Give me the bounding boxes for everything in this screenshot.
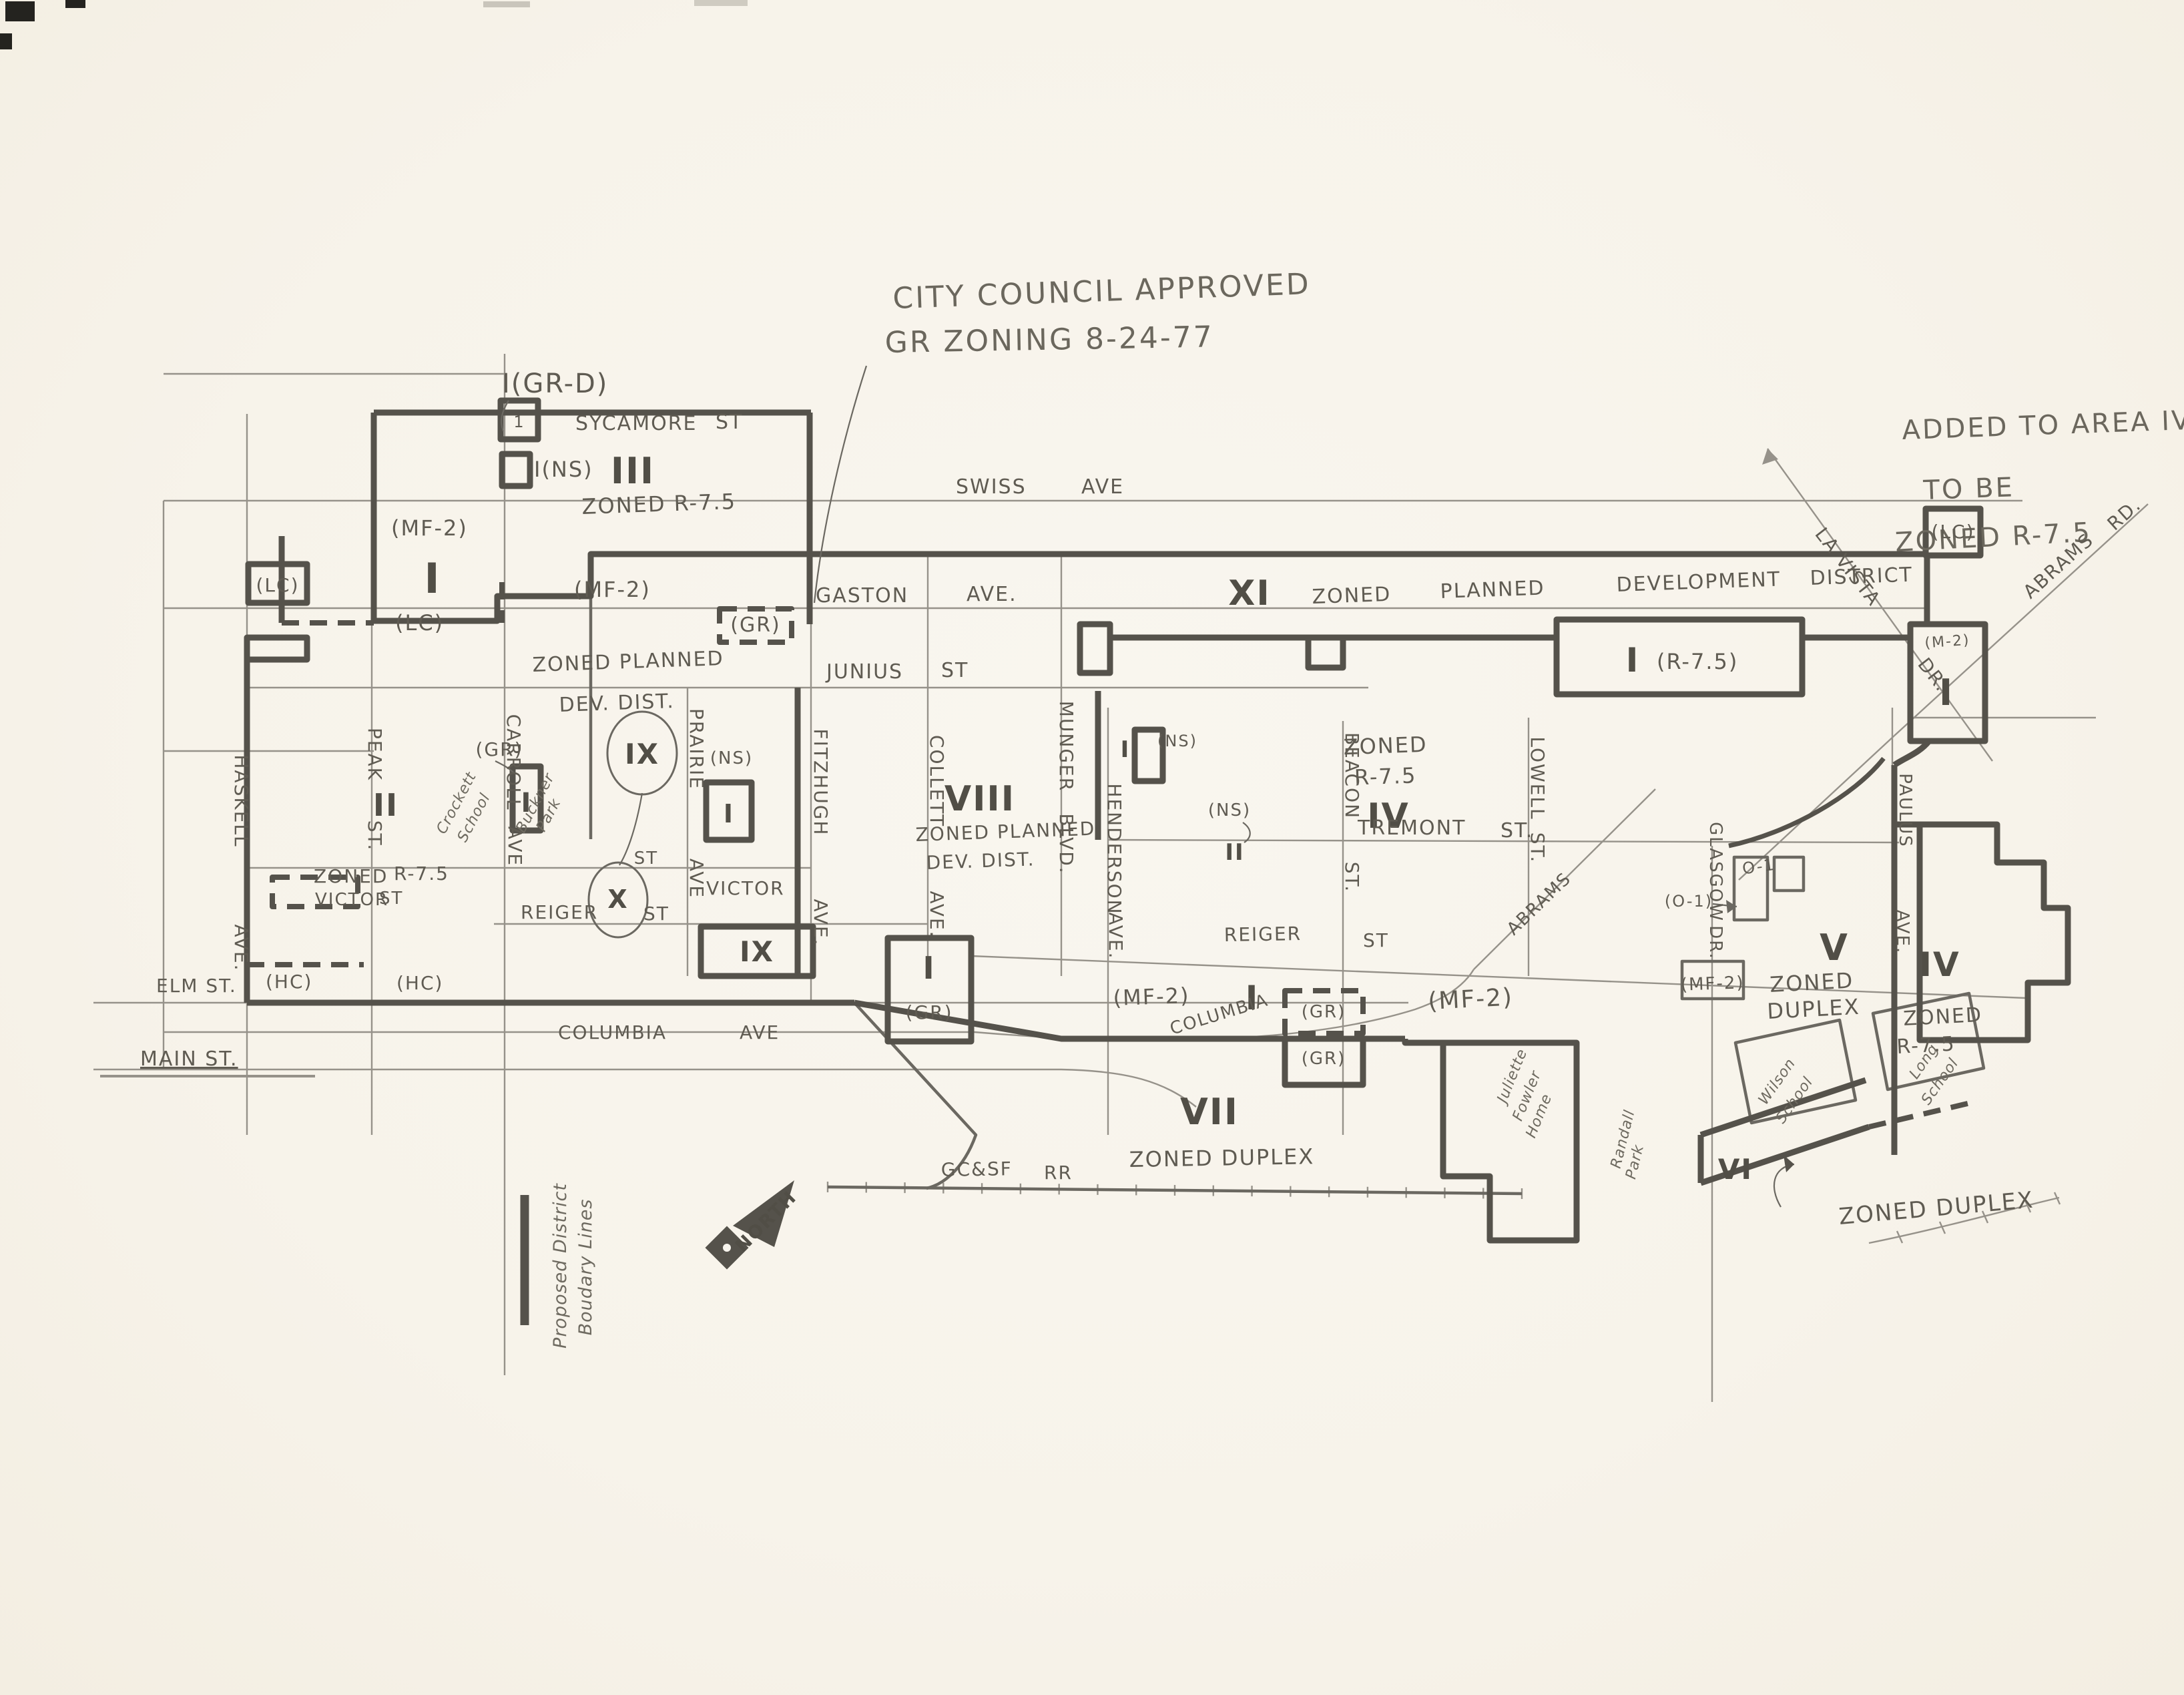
- zone-i-ns: I(NS): [534, 457, 593, 482]
- boundary-line-medium: [1774, 857, 1804, 891]
- railroad-gcsf: GC&SF: [941, 1158, 1013, 1181]
- map-label: AVE.: [1105, 912, 1127, 959]
- map-label: ST: [643, 903, 669, 925]
- map-label: (GR): [906, 1001, 953, 1023]
- note-city-council-1: CITY COUNCIL APPROVED: [892, 267, 1312, 316]
- map-label: (HC): [396, 972, 443, 994]
- district-boundary: [1729, 758, 1884, 846]
- zoning-map-canvas: CITY COUNCIL APPROVEDGR ZONING 8-24-77AD…: [0, 0, 2184, 1695]
- street-fitzhugh: FITZHUGH: [810, 729, 832, 836]
- map-label: (MF-2): [1427, 983, 1514, 1015]
- zone-west-pdd-1: ZONED PLANNED: [532, 647, 724, 677]
- zone-vi-note: ZONED DUPLEX: [1838, 1187, 2035, 1230]
- zone-iv-note: ZONED: [1343, 732, 1428, 760]
- street-tremont: TREMONT: [1357, 816, 1466, 840]
- leader-vi-zoned-duplex: [1774, 1164, 1794, 1207]
- map-label: R-7.5: [394, 863, 449, 885]
- map-label: AVE.: [967, 583, 1017, 606]
- zone-1-box: 1: [513, 413, 525, 431]
- map-label: DEV. DIST.: [559, 690, 675, 717]
- district-boundary: [1080, 624, 1110, 673]
- map-label: (GR): [1302, 1049, 1346, 1069]
- map-label: I: [922, 950, 935, 986]
- map-label: (HC): [266, 971, 312, 993]
- street-columbia: COLUMBIA: [558, 1021, 667, 1043]
- district-xi: XI: [1228, 573, 1270, 614]
- scan-mark: [5, 1, 35, 21]
- map-label: (GR): [476, 738, 523, 760]
- scanned-zoning-map-page: CITY COUNCIL APPROVEDGR ZONING 8-24-77AD…: [0, 0, 2184, 1695]
- zone-i-gr-d: I(GR-D): [502, 369, 608, 399]
- district-boundary-dashed: [1869, 1103, 1970, 1127]
- street-munger: MUNGER: [1055, 701, 1077, 792]
- map-label: ST.: [364, 820, 386, 851]
- street-peak: PEAK: [364, 728, 386, 781]
- north-base-dot: [723, 1244, 731, 1252]
- map-label: AVE: [686, 859, 708, 899]
- district-boundary: [502, 454, 530, 486]
- street-victor-w: VICTOR: [315, 890, 388, 910]
- street-junius: JUNIUS: [825, 660, 903, 684]
- street-reiger-w: REIGER: [521, 901, 598, 923]
- map-label: ST.: [1341, 862, 1363, 893]
- zone-i-r75: I: [1626, 641, 1640, 680]
- map-label: ZONED: [1312, 583, 1392, 609]
- street-victor-e: VICTOR: [706, 877, 785, 899]
- scan-smudge: [483, 1, 530, 7]
- district-ii: II: [373, 787, 398, 823]
- map-label: AVE.: [810, 899, 832, 946]
- district-i: I: [424, 554, 441, 603]
- map-label: ST: [1363, 929, 1389, 951]
- map-label: ST: [716, 411, 743, 434]
- map-label: I: [1121, 736, 1131, 763]
- scan-mark: [65, 0, 85, 8]
- district-boundary: [1308, 638, 1343, 668]
- district-boundary: [1405, 1039, 1443, 1043]
- map-label: (MF-2): [1113, 983, 1190, 1011]
- street-main: MAIN ST.: [140, 1047, 238, 1071]
- map-label: (NS): [710, 748, 753, 768]
- district-viii: VIII: [944, 779, 1015, 819]
- map-label: (R-7.5): [1657, 649, 1738, 674]
- district-boundary: [1894, 741, 1929, 765]
- map-label: AVE.: [926, 891, 948, 938]
- zone-v-note: ZONED: [1769, 967, 1854, 997]
- district-x: X: [607, 885, 628, 914]
- map-label: O-1: [1741, 855, 1776, 879]
- map-label: DR.: [1705, 925, 1725, 959]
- map-label: I: [724, 799, 734, 828]
- map-label: DEV. DIST.: [926, 848, 1035, 874]
- map-label: DUPLEX: [1766, 994, 1860, 1024]
- street-sycamore: SYCAMORE: [575, 412, 698, 435]
- district-iv-east: IV: [1919, 945, 1960, 984]
- map-label: AVE: [1081, 475, 1124, 499]
- street-line: [1061, 1069, 1196, 1107]
- map-label: ST: [379, 889, 403, 909]
- map-label: PLANNED: [1440, 577, 1545, 603]
- legend-line-2: Boudary Lines: [575, 1199, 596, 1336]
- map-labels: CITY COUNCIL APPROVEDGR ZONING 8-24-77AD…: [140, 267, 2184, 1349]
- note-city-council-2: GR ZONING 8-24-77: [884, 320, 1214, 360]
- zone-iv-east-note: ZONED: [1903, 1003, 1983, 1031]
- street-paulus: PAULUS: [1895, 773, 1915, 848]
- map-label: (MF-2): [574, 577, 651, 602]
- map-label: (M-2): [1924, 632, 1971, 652]
- map-label: (MF-2): [391, 515, 468, 541]
- district-v: V: [1820, 927, 1849, 969]
- map-label: (LC): [256, 574, 300, 596]
- district-vii: VII: [1180, 1091, 1239, 1133]
- note-added-2: TO BE: [1922, 472, 2015, 506]
- map-label: (GR): [730, 614, 781, 637]
- map-label: (LC): [395, 610, 444, 636]
- map-label: (NS): [1208, 800, 1251, 820]
- map-label: AVE.: [1892, 910, 1912, 955]
- map-label: AVE: [740, 1021, 780, 1043]
- map-label: ST: [634, 849, 658, 869]
- street-gaston: GASTON: [816, 584, 908, 608]
- street-swiss: SWISS: [956, 475, 1027, 499]
- district-iii: III: [611, 450, 655, 492]
- zone-ii-note: ZONED: [314, 865, 388, 887]
- map-label: (GR): [1302, 1002, 1346, 1022]
- map-label: (LC): [1932, 521, 1975, 543]
- district-ix-south: IX: [740, 935, 774, 968]
- street-elm: ELM ST.: [156, 975, 237, 997]
- arrowhead-vi: [1784, 1155, 1794, 1172]
- map-label: AVE.: [230, 924, 252, 971]
- map-label: R-7.5: [1354, 762, 1417, 790]
- zone-vii-note: ZONED DUPLEX: [1129, 1144, 1314, 1172]
- street-abrams-sw: ABRAMS: [1503, 869, 1575, 939]
- map-label: RD.: [2103, 493, 2146, 535]
- district-vi: VI: [1718, 1153, 1753, 1186]
- map-label: RR: [1044, 1162, 1073, 1184]
- map-label: ST.: [1500, 819, 1533, 842]
- scan-mark: [0, 33, 12, 49]
- leader-city-council: [814, 366, 866, 603]
- district-boundary: [247, 638, 307, 660]
- map-label: (MF-2): [1680, 973, 1745, 995]
- district-ix: IX: [625, 738, 659, 770]
- street-lowell: LOWELL: [1527, 736, 1549, 820]
- street-reiger-e: REIGER: [1224, 923, 1302, 946]
- street-henderson: HENDERSON: [1103, 783, 1125, 915]
- map-label: II: [1225, 839, 1244, 866]
- street-prairie: PRAIRIE: [686, 708, 708, 790]
- scan-smudge: [694, 0, 748, 6]
- legend-line-1: Proposed District: [550, 1183, 571, 1349]
- map-label: ST: [941, 659, 969, 682]
- street-haskell: HASKELL: [230, 754, 252, 847]
- map-label: (NS): [1157, 732, 1197, 750]
- zone-iii-note: ZONED R-7.5: [581, 489, 737, 519]
- map-label: R-7.5: [1896, 1032, 1956, 1059]
- note-added-1: ADDED TO AREA IV: [1902, 405, 2184, 446]
- map-label: DEVELOPMENT: [1616, 567, 1782, 597]
- map-label: (O-1): [1665, 892, 1713, 911]
